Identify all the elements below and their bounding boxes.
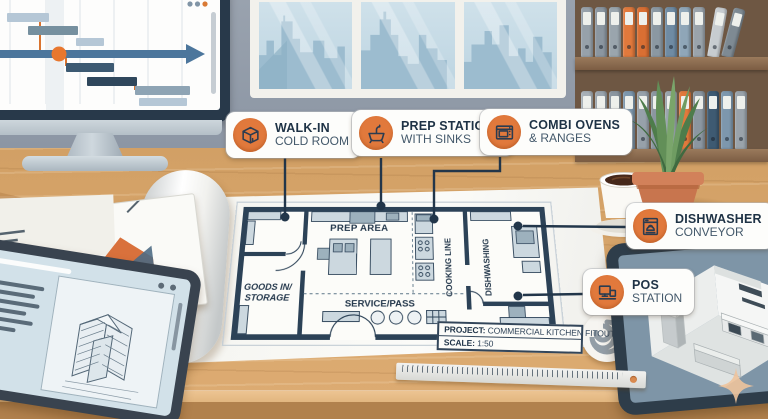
window-control-dot bbox=[187, 1, 192, 6]
city-skyline bbox=[259, 2, 352, 89]
toolbar-dot bbox=[170, 284, 177, 291]
toolbar-dot bbox=[158, 282, 165, 289]
binder bbox=[609, 7, 621, 57]
building-wireframe-panel bbox=[40, 276, 175, 409]
callout-title: WALK-IN bbox=[275, 121, 349, 135]
timeline-arrow bbox=[0, 50, 186, 58]
scrollbar bbox=[211, 12, 216, 94]
callout-disc bbox=[359, 116, 393, 150]
gantt-bar bbox=[76, 38, 104, 46]
gantt-chart bbox=[0, 0, 220, 110]
gantt-bar bbox=[7, 13, 49, 22]
binder bbox=[679, 7, 691, 57]
window-pane bbox=[464, 2, 557, 89]
plant-leaves bbox=[630, 76, 708, 180]
cube-icon bbox=[240, 125, 261, 146]
window-control-dot bbox=[195, 1, 200, 6]
gantt-bar bbox=[87, 77, 137, 86]
binder-row bbox=[581, 7, 733, 57]
callout-disc bbox=[633, 209, 667, 243]
scale-label: SCALE: bbox=[444, 337, 475, 348]
callout-title: POS bbox=[632, 278, 682, 292]
binder bbox=[665, 7, 677, 57]
illustration-scene: PREP AREA GOODS IN/ STORAGE SERVICE/PASS… bbox=[0, 0, 768, 419]
timeline-arrowhead bbox=[186, 44, 205, 64]
callout-disc bbox=[590, 275, 624, 309]
callout-subtitle: CONVEYOR bbox=[675, 226, 762, 240]
binder bbox=[651, 7, 663, 57]
desktop-monitor bbox=[0, 0, 230, 182]
scale-value: 1:50 bbox=[475, 338, 494, 348]
callout-combi-ovens: COMBI OVENS & RANGES bbox=[480, 109, 632, 155]
gantt-bar bbox=[135, 86, 190, 95]
monitor-screen bbox=[0, 0, 220, 110]
room-label-storage-2: STORAGE bbox=[244, 292, 290, 302]
callout-subtitle: & RANGES bbox=[529, 132, 620, 146]
callout-pos-station: POS STATION bbox=[583, 269, 694, 315]
milestone-dot bbox=[52, 47, 67, 62]
blueprint: PREP AREA GOODS IN/ STORAGE SERVICE/PASS… bbox=[138, 168, 624, 366]
binder bbox=[693, 7, 705, 57]
tablet-left-screen bbox=[0, 245, 191, 416]
monitor-chin bbox=[0, 120, 222, 135]
callout-dishwasher-conveyor: DISHWASHER CONVEYOR bbox=[626, 203, 768, 249]
callout-subtitle: STATION bbox=[632, 292, 682, 306]
binder bbox=[595, 7, 607, 57]
room-label-storage-1: GOODS IN/ bbox=[244, 282, 294, 292]
callout-disc bbox=[487, 115, 521, 149]
gantt-bar bbox=[28, 26, 78, 35]
window bbox=[250, 0, 566, 98]
pos-icon bbox=[597, 282, 618, 303]
callout-walk-in-cold-room: WALK-IN COLD ROOM bbox=[226, 112, 361, 158]
building-wireframe bbox=[41, 277, 176, 410]
callout-title: COMBI OVENS bbox=[529, 118, 620, 132]
callout-disc bbox=[233, 118, 267, 152]
sparkle-icon bbox=[716, 366, 756, 406]
window-pane bbox=[259, 2, 352, 89]
room-label-prep: PREP AREA bbox=[330, 223, 389, 233]
project-label: PROJECT: bbox=[444, 324, 485, 335]
window-pane bbox=[361, 2, 454, 89]
city-skyline bbox=[464, 2, 557, 89]
binder bbox=[637, 7, 649, 57]
oven-icon bbox=[494, 122, 515, 143]
city-skyline bbox=[361, 2, 454, 89]
sink-icon bbox=[366, 123, 387, 144]
callout-title: DISHWASHER bbox=[675, 212, 762, 226]
binder bbox=[581, 7, 593, 57]
binder bbox=[623, 7, 635, 57]
callout-subtitle: COLD ROOM bbox=[275, 135, 349, 149]
gantt-bar bbox=[66, 63, 114, 72]
gantt-bar bbox=[139, 98, 187, 106]
window-control-dot bbox=[202, 1, 207, 6]
room-label-service: SERVICE/PASS bbox=[345, 298, 415, 308]
gantt-bars bbox=[7, 13, 190, 106]
title-block: PROJECT: COMMERCIAL KITCHEN FITOUT SCALE… bbox=[437, 321, 584, 354]
toolbar-pill bbox=[0, 255, 72, 274]
binder bbox=[735, 91, 747, 149]
dishwasher-icon bbox=[640, 216, 661, 237]
